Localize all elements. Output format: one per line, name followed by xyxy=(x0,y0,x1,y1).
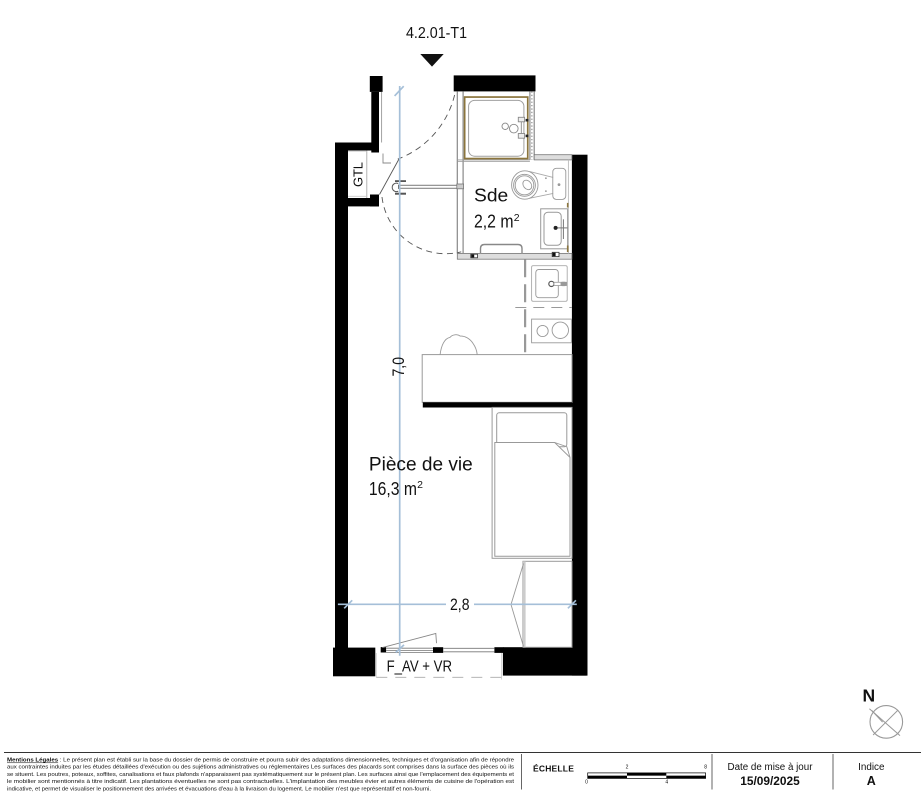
svg-text:16,3 m: 16,3 m xyxy=(369,479,417,499)
svg-text:Pièce de vie: Pièce de vie xyxy=(369,454,473,476)
svg-text:2: 2 xyxy=(514,212,520,224)
svg-text:GTL: GTL xyxy=(351,162,366,187)
svg-text:2: 2 xyxy=(417,479,423,491)
svg-text:4.2.01-T1: 4.2.01-T1 xyxy=(406,25,467,42)
svg-text:ÉCHELLE: ÉCHELLE xyxy=(533,764,574,774)
svg-text:N: N xyxy=(863,686,876,706)
svg-text:indicative, et permet de visua: indicative, et permet de visualiser le p… xyxy=(7,786,431,792)
svg-text:Sde: Sde xyxy=(474,185,508,205)
svg-text:2,8: 2,8 xyxy=(450,595,470,614)
svg-text:4: 4 xyxy=(665,780,668,786)
svg-text:7,0: 7,0 xyxy=(389,357,408,377)
svg-text:2,2 m: 2,2 m xyxy=(474,212,514,232)
svg-text:se situent. Les poutres, potea: se situent. Les poutres, poteaux, soffit… xyxy=(7,772,515,778)
svg-text:Indice: Indice xyxy=(858,762,885,773)
svg-text:Mentions Légales : Le présent: Mentions Légales : Le présent plan est é… xyxy=(7,758,514,764)
svg-text:aux contraintes induites par l: aux contraintes induites par les études … xyxy=(7,765,514,771)
svg-text:2: 2 xyxy=(626,765,629,771)
svg-text:15/09/2025: 15/09/2025 xyxy=(740,774,800,788)
svg-text:0: 0 xyxy=(585,780,588,786)
svg-text:A: A xyxy=(867,774,876,788)
svg-text:8: 8 xyxy=(704,765,707,771)
svg-text:Date de mise à jour: Date de mise à jour xyxy=(728,762,814,773)
svg-text:le mobilier sont mentionnés à: le mobilier sont mentionnés à titre indi… xyxy=(7,779,515,785)
svg-text:F_AV + VR: F_AV + VR xyxy=(387,659,452,676)
